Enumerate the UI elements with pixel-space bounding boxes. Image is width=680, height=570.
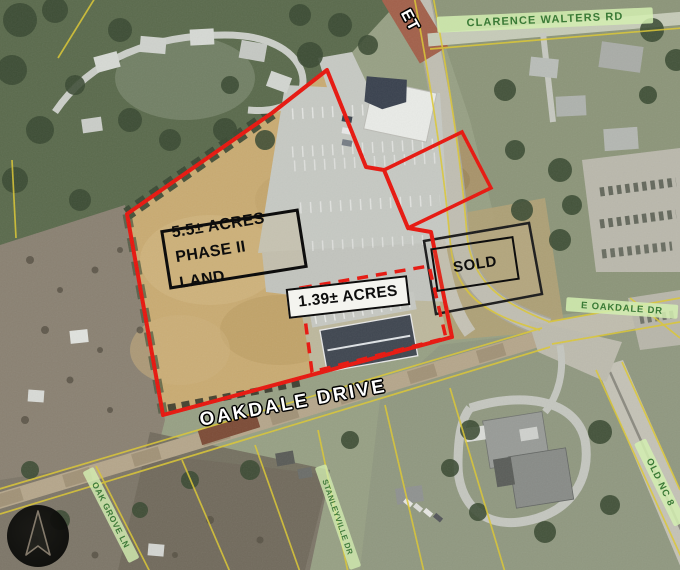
north-compass-icon [7, 505, 69, 567]
sold-text: SOLD [452, 252, 498, 275]
north-arrow [7, 505, 69, 567]
pad-acreage-text: 1.39± ACRES [297, 282, 398, 311]
aerial-parcel-map: CLARENCE WALTERS RD E OAKDALE DR OLD NC … [0, 0, 680, 570]
parcel-label-phase2: 5.5± ACRES PHASE II LAND [160, 208, 308, 289]
